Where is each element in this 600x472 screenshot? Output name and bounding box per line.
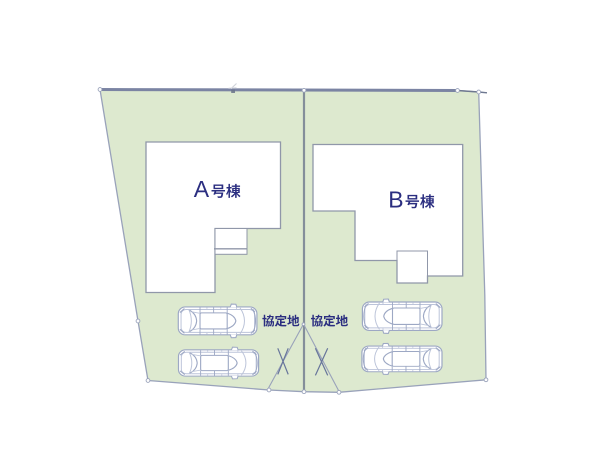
- svg-text:A: A: [194, 176, 210, 202]
- svg-text:B: B: [388, 187, 403, 213]
